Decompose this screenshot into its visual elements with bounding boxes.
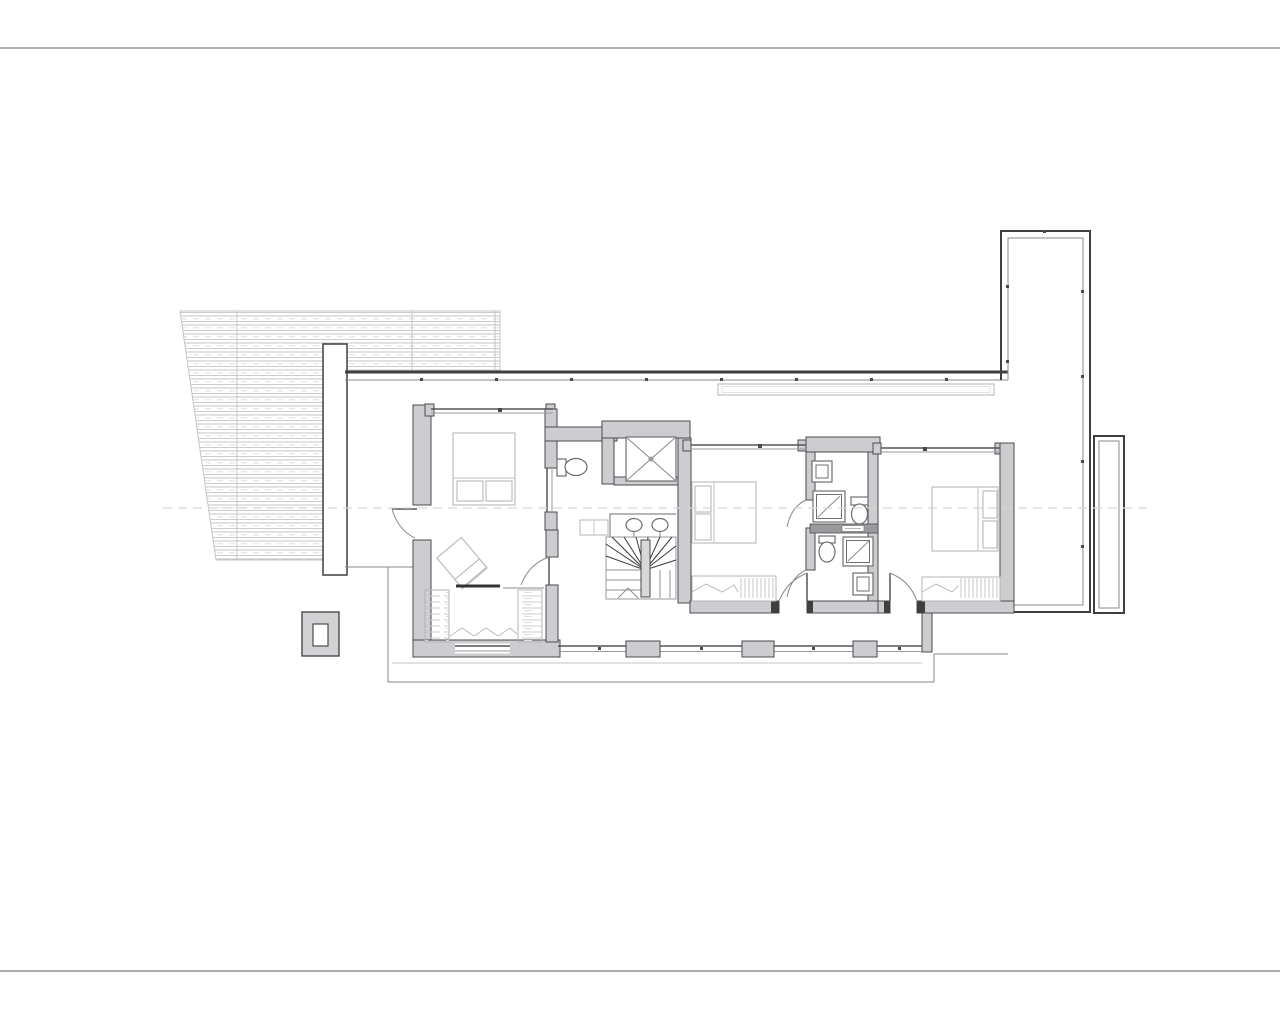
sink-basin: [626, 519, 642, 532]
wardrobe-left: [425, 590, 449, 642]
east-parapet-dots: [1006, 230, 1084, 548]
wall-elevator-north: [602, 421, 690, 438]
wardrobe-right: [518, 590, 542, 642]
north-parapet: [345, 372, 1008, 395]
hanger-section: [738, 577, 776, 600]
dressing-south-window-inset: [455, 644, 510, 654]
master-bedroom: [392, 433, 515, 589]
jamb: [807, 601, 813, 613]
pillow: [983, 491, 997, 518]
window-dot: [758, 444, 762, 448]
door-swing-master-west: [392, 509, 415, 538]
wall-bedroom2-west: [678, 438, 691, 603]
bedroom-3: [890, 487, 1000, 601]
east-parapet-inner: [1008, 238, 1083, 605]
door-swing-bath-upper: [787, 500, 806, 527]
elevator-center-dot: [649, 457, 654, 462]
mullion-block: [626, 641, 660, 657]
sink-basin: [652, 519, 668, 532]
toilet-bowl: [819, 542, 835, 562]
winder-stair: [606, 537, 676, 599]
post-master-nw: [425, 404, 434, 416]
door-swing-dressing: [521, 557, 549, 585]
post-bedroom3-nw: [873, 443, 881, 454]
washbasin-lower: [853, 573, 873, 595]
lounge-chair: [437, 537, 487, 588]
hanger-section: [958, 578, 1000, 600]
planter: [718, 384, 994, 395]
dressing-room: [425, 557, 549, 642]
bathroom-master: [557, 459, 587, 477]
pergola-wall-column: [323, 344, 347, 575]
wall-corridor-1: [690, 601, 779, 613]
jamb: [917, 601, 925, 613]
wall-vanity-west-upper: [546, 530, 558, 557]
wall-vanity-west-lower: [546, 585, 558, 642]
toilet-bowl: [565, 459, 587, 476]
door-swing-bedroom-3: [890, 573, 917, 601]
pillow: [983, 521, 997, 548]
jamb: [771, 601, 779, 613]
washbasin-upper: [812, 461, 832, 482]
drawing-sheet: [0, 0, 1280, 1024]
bathroom-lower: [787, 536, 873, 597]
pillow: [486, 481, 512, 501]
window-dot: [498, 408, 502, 412]
pergola-louvre-roof: [180, 311, 500, 575]
wall-corridor-2: [807, 601, 878, 613]
window-dot: [923, 447, 927, 451]
wall-elevator-west: [602, 438, 614, 484]
glazed-south-wall: [558, 641, 922, 657]
bathroom-upper: [787, 461, 868, 527]
pillow: [695, 514, 711, 540]
stair-newel: [641, 540, 650, 597]
mullion-block: [742, 641, 774, 657]
door-swing-bedroom-2: [779, 573, 807, 601]
wall-master-west-upper: [413, 405, 431, 505]
wall-bath1-west-lower: [545, 512, 557, 530]
chimney: [302, 612, 339, 656]
jamb: [884, 601, 890, 613]
elevator: [626, 437, 676, 481]
post-bedroom2-nw: [683, 440, 691, 451]
page-rules: [0, 48, 1280, 971]
clothes-zigzag: [450, 628, 517, 636]
east-parapet: [1001, 230, 1124, 613]
pillow: [457, 481, 483, 501]
toilet-bowl: [852, 504, 868, 524]
wall-baths-north: [806, 437, 880, 452]
wall-baths-west-2: [806, 528, 815, 570]
wall-se-stub: [922, 613, 932, 652]
floor-plan-svg: [0, 0, 1280, 1024]
bedroom-2: [692, 482, 807, 601]
mullion-block: [853, 641, 877, 657]
chimney-flue: [313, 624, 328, 646]
wall-corridor-4: [917, 601, 1014, 613]
wall-bedroom3-east: [1000, 443, 1014, 611]
